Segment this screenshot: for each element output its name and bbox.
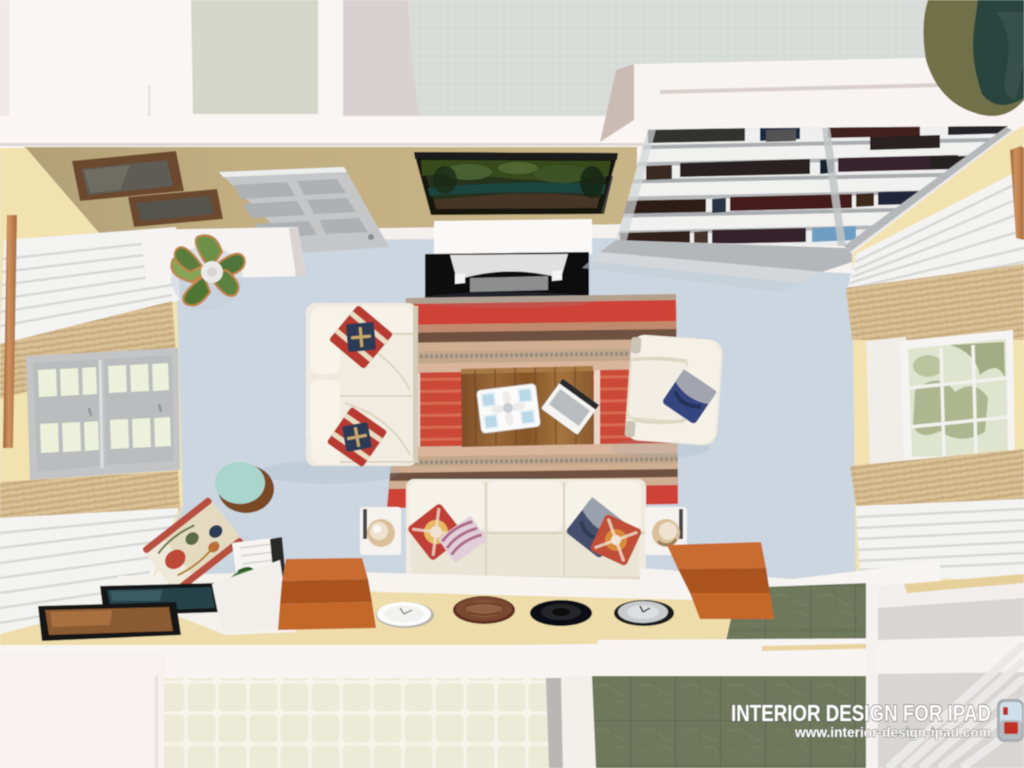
- svg-text:www.interior-design-ipad.com: www.interior-design-ipad.com: [794, 725, 991, 740]
- svg-text:INTERIOR DESIGN FOR IPAD: INTERIOR DESIGN FOR IPAD: [731, 700, 991, 726]
